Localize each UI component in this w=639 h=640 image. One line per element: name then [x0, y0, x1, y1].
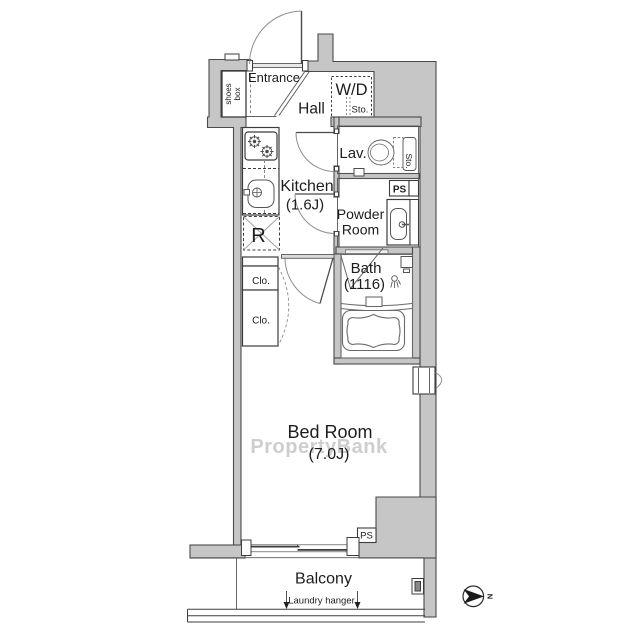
svg-text:Sto.: Sto.: [352, 105, 369, 116]
svg-text:Sto.: Sto.: [404, 153, 414, 168]
svg-text:Room: Room: [342, 222, 379, 238]
svg-text:Kitchen: Kitchen: [280, 178, 333, 195]
svg-text:Balcony: Balcony: [295, 571, 352, 588]
svg-text:N: N: [486, 594, 495, 599]
svg-text:Bath: Bath: [351, 260, 382, 277]
svg-text:shoes: shoes: [224, 83, 233, 104]
svg-text:PS: PS: [360, 531, 373, 542]
svg-text:(1.6J): (1.6J): [286, 197, 324, 214]
svg-text:R: R: [251, 225, 265, 247]
svg-text:(7.0J): (7.0J): [309, 446, 350, 463]
svg-text:Hall: Hall: [298, 101, 325, 118]
svg-text:Bed Room: Bed Room: [287, 422, 372, 442]
svg-text:box: box: [233, 88, 242, 101]
svg-text:Laundry hanger: Laundry hanger: [288, 596, 355, 607]
svg-text:Clo.: Clo.: [252, 276, 270, 287]
svg-text:Powder: Powder: [337, 206, 385, 222]
svg-text:Entrance: Entrance: [248, 70, 300, 85]
svg-text:(1116): (1116): [344, 276, 385, 293]
svg-text:W/D: W/D: [335, 81, 367, 99]
svg-text:PS: PS: [393, 185, 407, 196]
svg-text:Lav.: Lav.: [339, 145, 366, 162]
svg-text:Clo.: Clo.: [252, 316, 270, 327]
